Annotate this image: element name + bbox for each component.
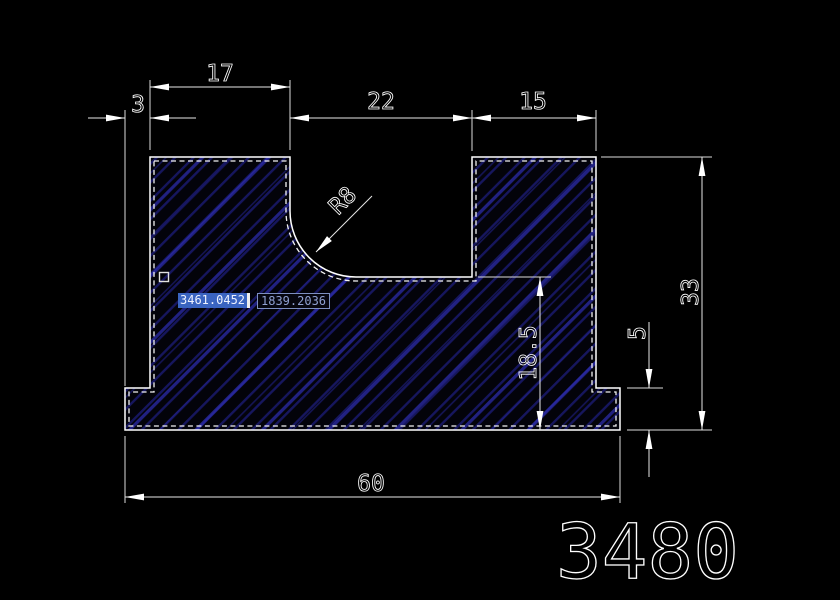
dim-5-text[interactable]: 5 <box>625 326 651 340</box>
dim-18-5-text[interactable]: 18.5 <box>516 325 542 380</box>
dim-15-text[interactable]: 15 <box>519 89 547 115</box>
dimension-15[interactable]: 15 <box>472 89 596 121</box>
cad-drawing-canvas[interactable]: 17 3 22 15 R8 <box>0 0 840 600</box>
dimension-3[interactable]: 3 <box>88 92 196 121</box>
dimension-5[interactable]: 5 <box>625 322 652 477</box>
dim-3-text[interactable]: 3 <box>131 92 145 118</box>
dimension-r8[interactable]: R8 <box>314 182 372 254</box>
drawing-number-text: 3480 <box>556 507 739 596</box>
dimension-60[interactable]: 60 <box>125 471 620 500</box>
dim-17-text[interactable]: 17 <box>206 61 234 87</box>
dimension-22[interactable]: 22 <box>290 89 472 121</box>
dynamic-input-y-field[interactable]: 1839.2036 <box>257 293 330 309</box>
dim-r8-text[interactable]: R8 <box>324 182 362 220</box>
dimension-17[interactable]: 17 <box>150 61 290 90</box>
dynamic-input-x-field[interactable]: 3461.0452 <box>178 293 250 308</box>
dim-33-text[interactable]: 33 <box>678 278 704 306</box>
dim-60-text[interactable]: 60 <box>357 471 385 497</box>
dynamic-input-x-value[interactable]: 3461.0452 <box>178 293 247 308</box>
drawing-svg: 17 3 22 15 R8 <box>0 0 840 600</box>
dim-22-text[interactable]: 22 <box>367 89 395 115</box>
dimension-33[interactable]: 33 <box>678 157 705 430</box>
